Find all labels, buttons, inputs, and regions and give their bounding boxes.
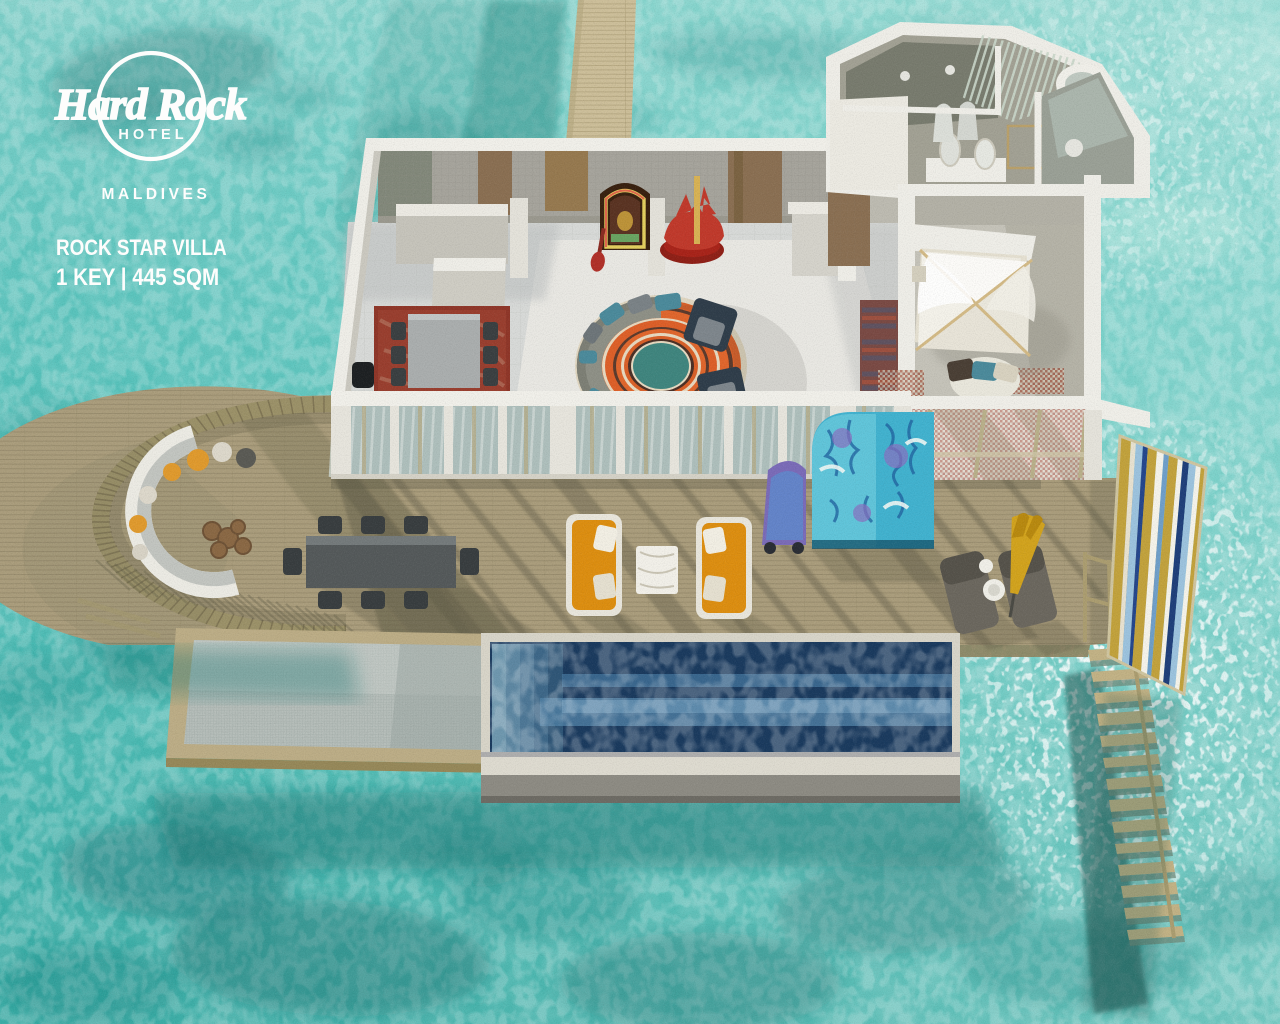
svg-text:1 KEY | 445 SQM: 1 KEY | 445 SQM — [56, 263, 219, 290]
svg-text:Hard Rock: Hard Rock — [54, 80, 247, 129]
svg-text:HOTEL: HOTEL — [118, 127, 187, 143]
svg-text:MALDIVES: MALDIVES — [102, 186, 211, 203]
svg-text:ROCK STAR VILLA: ROCK STAR VILLA — [56, 236, 227, 261]
